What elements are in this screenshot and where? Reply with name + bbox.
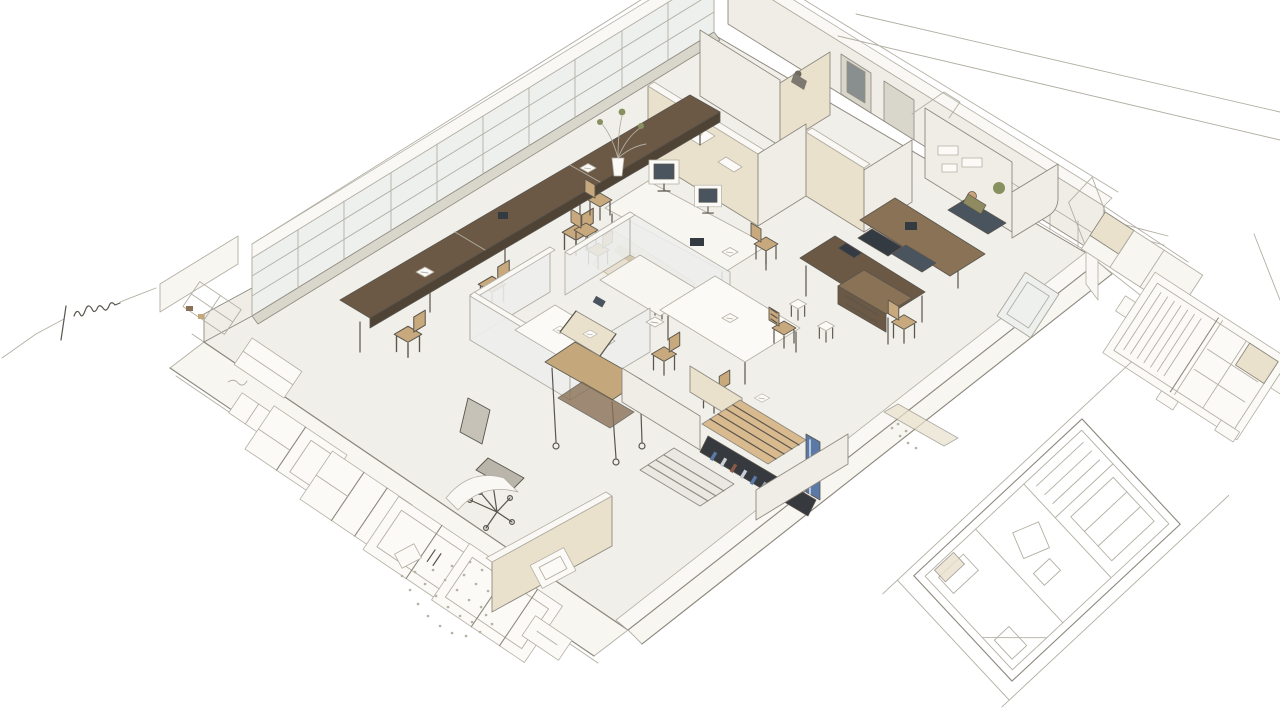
architectural-sketch-canvas (0, 0, 1280, 720)
handwritten-annotation (2, 288, 156, 358)
rotated-floor-plan-sketch (883, 362, 1244, 714)
main-axon-view (160, 0, 1162, 663)
handwritten-note-scribble (74, 303, 120, 316)
sketch-drawing (0, 0, 1280, 720)
